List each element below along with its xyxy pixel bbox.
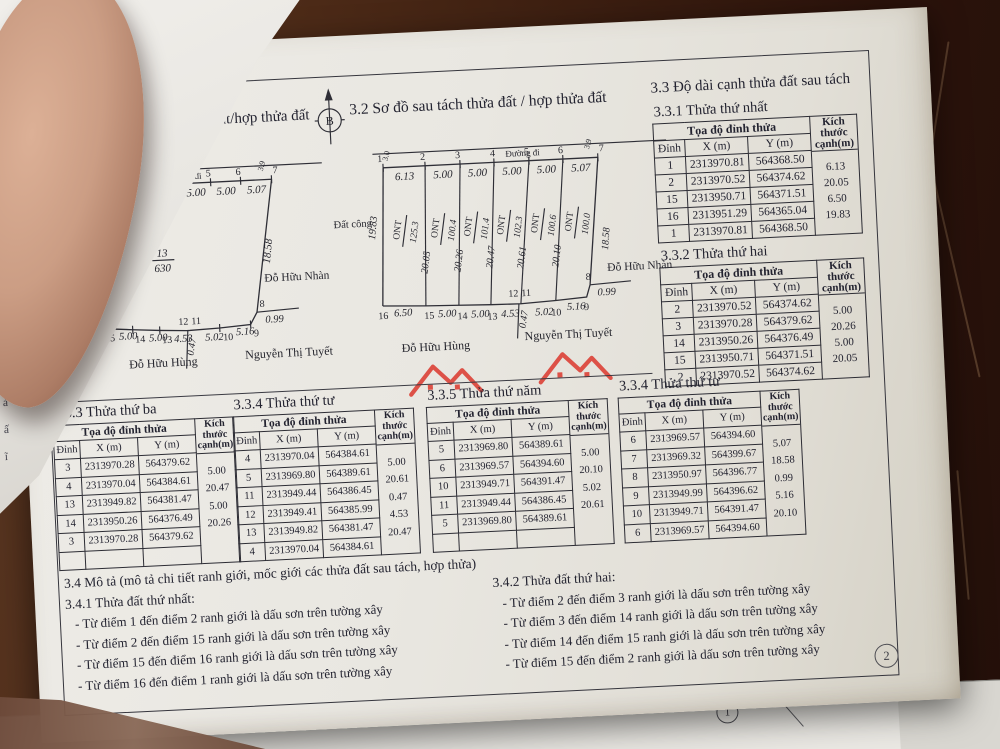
strip-label: ONT 101.4: [462, 210, 493, 245]
svg-text:7: 7: [599, 143, 605, 154]
svg-text:13: 13: [162, 335, 173, 346]
svg-text:5: 5: [524, 147, 530, 158]
svg-text:Đỗ Hữu Hùng: Đỗ Hữu Hùng: [401, 338, 470, 355]
svg-text:9: 9: [584, 302, 590, 313]
svg-text:ONT: ONT: [430, 218, 442, 239]
svg-text:3.9: 3.9: [582, 138, 593, 150]
svg-text:0.99: 0.99: [597, 287, 617, 299]
photo-scene: 1 ách thửa đất/hợp thửa đất: .1 Sơ đồ tr…: [0, 0, 1000, 749]
svg-text:5.00: 5.00: [433, 168, 453, 181]
svg-text:10: 10: [223, 332, 234, 343]
svg-text:18.58: 18.58: [600, 227, 613, 250]
svg-text:5.07: 5.07: [247, 184, 267, 197]
svg-text:4: 4: [490, 148, 496, 159]
svg-text:Nguyễn Thị Tuyết: Nguyễn Thị Tuyết: [524, 325, 613, 343]
strip-label: ONT 100.0: [563, 205, 594, 240]
edge-length-column: Kíchthướccạnh(m) 5.00 20.10 5.02 20.61: [569, 398, 615, 546]
svg-text:Đỗ Hữu Hùng: Đỗ Hữu Hùng: [129, 354, 198, 371]
svg-text:5.00: 5.00: [216, 185, 236, 198]
svg-text:0.47: 0.47: [517, 309, 531, 329]
svg-text:13: 13: [487, 311, 498, 322]
svg-text:14: 14: [457, 311, 468, 322]
svg-text:11: 11: [521, 288, 531, 299]
svg-text:630: 630: [154, 262, 172, 275]
svg-text:7: 7: [272, 165, 278, 176]
svg-text:ONT: ONT: [564, 211, 576, 232]
svg-text:6.13: 6.13: [395, 170, 415, 183]
svg-text:5: 5: [205, 168, 211, 179]
edge-length-column: Kíchthướccạnh(m) 5.07 18.58 0.99 5.16 20…: [760, 389, 806, 537]
svg-text:20.26: 20.26: [452, 249, 466, 273]
svg-text:125.3: 125.3: [409, 221, 422, 244]
notes-left: 3.4 Mô tả (mô tả chi tiết ranh giới, mốc…: [64, 554, 482, 697]
svg-text:10: 10: [551, 307, 562, 318]
svg-text:14: 14: [135, 334, 146, 345]
svg-text:3: 3: [455, 150, 461, 161]
svg-text:ONT: ONT: [463, 216, 475, 237]
notes-right: 3.4.2 Thửa đất thứ hai: - Từ điểm 2 đến …: [492, 557, 827, 676]
svg-text:12: 12: [508, 288, 519, 299]
svg-text:18.58: 18.58: [261, 238, 275, 264]
svg-text:3.9: 3.9: [256, 160, 267, 172]
svg-text:ONT: ONT: [392, 220, 404, 241]
svg-text:0.99: 0.99: [265, 314, 285, 326]
strip-label: ONT 100.6: [529, 207, 560, 242]
svg-text:Đỗ Hữu Nhàn: Đỗ Hữu Nhàn: [264, 269, 330, 285]
table-3-3-2: 3.3.2 Thửa thứ hai Tọa độ đỉnh thửa Đỉnh…: [658, 238, 870, 387]
svg-text:6: 6: [558, 145, 564, 156]
svg-text:5.16: 5.16: [236, 326, 256, 338]
svg-text:101.4: 101.4: [480, 217, 493, 240]
svg-text:5.07: 5.07: [571, 162, 591, 175]
svg-text:20.05: 20.05: [419, 251, 433, 275]
svg-text:3.0: 3.0: [380, 150, 391, 162]
table-3-3-6: 3.3.4 Thửa thứ tư Tọa độ đỉnh thửa ĐỉnhX…: [617, 370, 807, 544]
table-3-3-3: 3.3.3 Thửa thứ ba Tọa độ đỉnh thửa ĐỉnhX…: [51, 397, 241, 571]
svg-text:ONT: ONT: [496, 215, 508, 236]
svg-text:5.02: 5.02: [205, 332, 225, 344]
svg-text:4.53: 4.53: [501, 308, 520, 320]
svg-text:102.3: 102.3: [513, 216, 526, 239]
svg-text:15: 15: [424, 310, 435, 321]
edge-length-column: Kíchthướccạnh(m) 5.00 20.26 5.00 20.05: [817, 257, 870, 379]
svg-text:13: 13: [156, 247, 168, 260]
strip-label: ONT 102.3: [495, 209, 526, 244]
strip-label: ONT 100.4: [429, 212, 460, 247]
svg-text:B: B: [325, 114, 334, 128]
svg-text:5.00: 5.00: [536, 163, 556, 176]
svg-text:8: 8: [585, 272, 591, 283]
cell: 1: [654, 157, 686, 175]
svg-text:Đất công: Đất công: [333, 218, 372, 231]
svg-text:5.00: 5.00: [502, 165, 522, 178]
svg-text:ONT: ONT: [530, 213, 542, 234]
svg-text:11: 11: [191, 316, 201, 327]
wood-scratch: [956, 470, 969, 600]
svg-text:8: 8: [259, 299, 265, 310]
svg-text:20.61: 20.61: [515, 246, 529, 270]
table-3-3-1: 3.3.1 Thửa thứ nhất Tọa độ đỉnh thửa Đỉn…: [651, 95, 863, 244]
north-compass-icon: B: [313, 86, 346, 149]
svg-text:9: 9: [254, 328, 260, 339]
svg-text:Đường đi: Đường đi: [505, 147, 540, 159]
svg-text:100.0: 100.0: [581, 212, 594, 235]
svg-text:Nguyễn Thị Tuyết: Nguyễn Thị Tuyết: [245, 343, 334, 361]
strip-label: ONT 125.3: [391, 214, 422, 249]
svg-text:2: 2: [420, 152, 426, 163]
svg-text:6: 6: [235, 167, 241, 178]
svg-text:20.47: 20.47: [484, 244, 498, 269]
table-3-3-4: 3.3.4 Thửa thứ tư Tọa độ đỉnh thửa ĐỉnhX…: [231, 389, 421, 563]
edge-length-column: Kíchthướccạnh(m) 6.13 20.05 6.50 19.83: [810, 114, 863, 236]
svg-text:16: 16: [378, 311, 389, 322]
edge-length-column: Kíchthướccạnh(m) 5.00 20.61 0.47 4.53 20…: [375, 408, 421, 556]
svg-text:5.00: 5.00: [468, 167, 488, 180]
svg-text:12: 12: [178, 317, 189, 328]
svg-text:100.4: 100.4: [447, 219, 460, 242]
svg-text:5.00: 5.00: [438, 308, 458, 320]
svg-text:20.10: 20.10: [550, 244, 564, 268]
svg-text:100.6: 100.6: [547, 214, 560, 237]
svg-text:6.50: 6.50: [394, 308, 414, 320]
table-3-3-5: 3.3.5 Thửa thứ năm Tọa độ đỉnh thửa Đỉnh…: [425, 379, 615, 553]
